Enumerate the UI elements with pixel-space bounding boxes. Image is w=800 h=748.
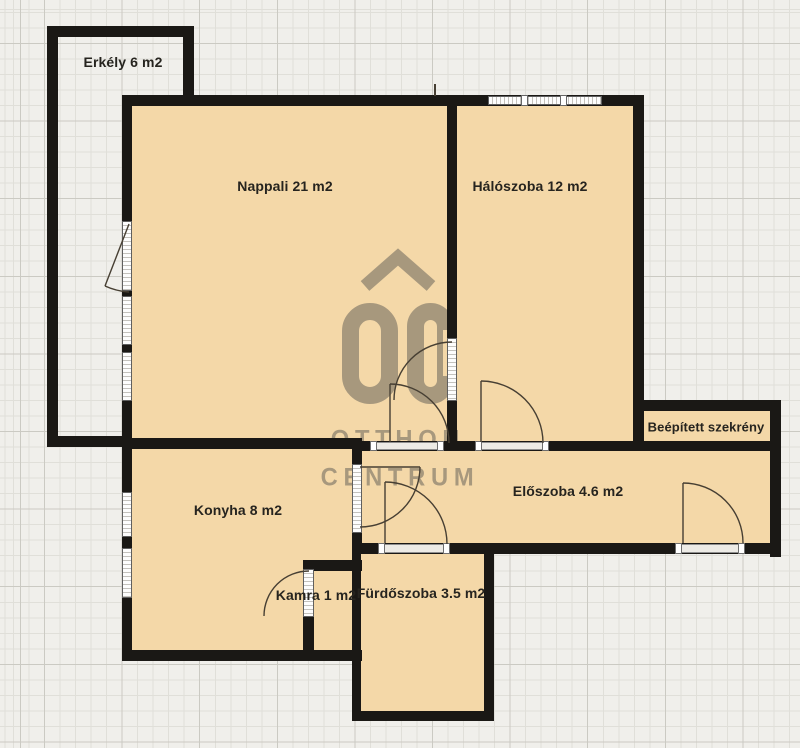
wall-balcony-bottom: [47, 436, 123, 447]
room-label-kamra: Kamra 1 m2: [276, 587, 356, 603]
room-label-haloszoba: Hálószoba 12 m2: [472, 178, 587, 194]
wall-balcony-right: [183, 26, 194, 99]
window-mullion: [521, 95, 528, 106]
window-nappali-1: [122, 296, 132, 345]
door-opening-entrance: [677, 544, 743, 553]
door-divider-panel: [447, 338, 457, 401]
wall-balcony-left: [47, 26, 58, 447]
room-label-szekreny: Beépített szekrény: [648, 420, 765, 435]
window-haloszoba: [488, 96, 602, 105]
wall-kitchen-bottom: [122, 650, 362, 661]
wall-bedroom-right: [633, 95, 644, 451]
door-konyha-panel: [352, 464, 362, 533]
floor-plan: OTTHON CENTRUM: [0, 0, 800, 748]
wall-kitchen-top: [122, 438, 362, 449]
wall-closet-top: [633, 400, 781, 411]
wall-divider: [447, 95, 457, 340]
balcony-door-panel: [122, 221, 132, 291]
door-opening-furdoszoba: [380, 544, 448, 553]
room-label-konyha: Konyha 8 m2: [194, 502, 282, 518]
window-konyha-1: [122, 492, 132, 537]
window-mullion: [560, 95, 567, 106]
room-label-eloszoba: Előszoba 4.6 m2: [513, 483, 623, 499]
oc-logo-icon: [0, 0, 800, 748]
window-nappali-2: [122, 352, 132, 401]
door-opening-nappali: [372, 442, 442, 450]
window-konyha-2: [122, 548, 132, 598]
wall-balcony-top: [47, 26, 194, 37]
wall-outer-right: [770, 400, 781, 557]
wall-bath-right: [484, 543, 494, 721]
room-label-nappali: Nappali 21 m2: [237, 178, 332, 194]
door-opening-haloszoba: [477, 442, 547, 450]
watermark: OTTHON CENTRUM: [0, 0, 800, 748]
watermark-line2: CENTRUM: [321, 464, 480, 493]
wall-bath-bottom: [352, 711, 494, 721]
room-label-erkely: Erkély 6 m2: [84, 54, 163, 70]
room-label-furdoszoba: Fürdőszoba 3.5 m2: [357, 585, 486, 601]
